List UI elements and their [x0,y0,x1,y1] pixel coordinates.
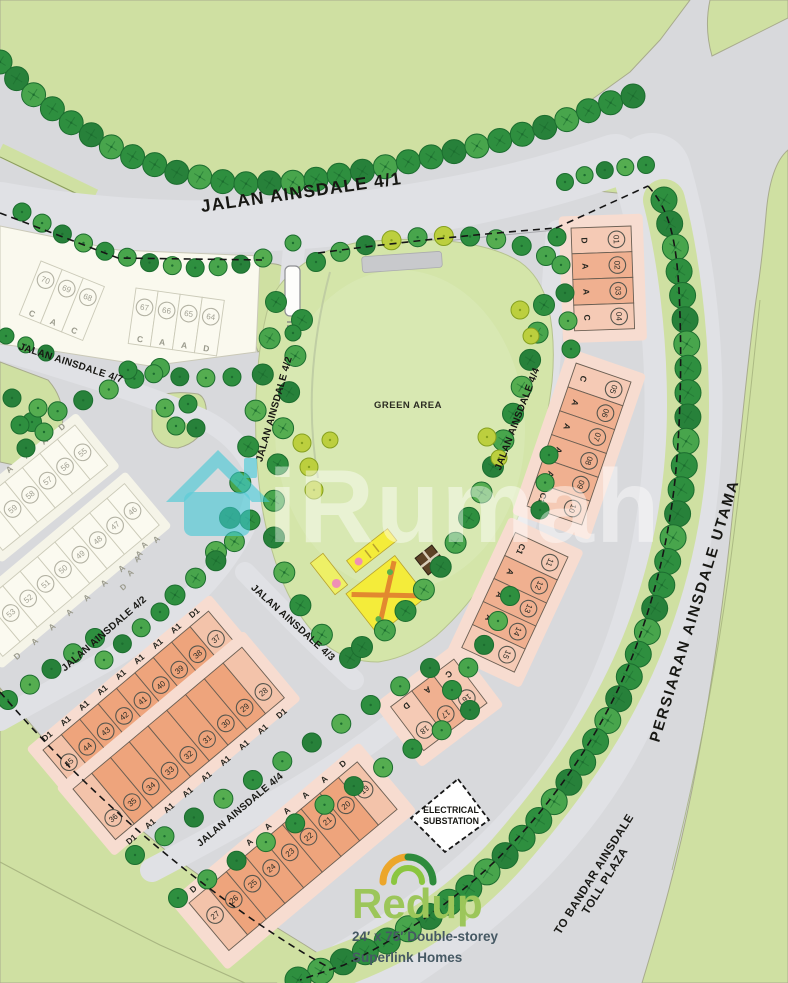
tree-icon [331,242,350,261]
tree-icon [96,242,114,260]
tree-icon [266,292,287,313]
site-plan-map: 45D144A143A142A141A140A139A138A137D136D1… [0,0,788,983]
tree-icon [186,568,206,588]
tree-icon [512,236,531,255]
tree-icon [17,439,35,457]
tree-icon [198,870,217,889]
tree-icon [151,603,169,621]
tree-icon [74,391,93,410]
tree-icon [625,641,651,667]
tree-icon [675,355,701,381]
tree-icon [419,145,443,169]
tree-icon [596,162,613,179]
tree-icon [118,248,136,266]
lot-number: 03 [613,286,622,296]
tree-icon [274,562,295,583]
tree-icon [165,585,185,605]
tree-icon [48,402,67,421]
tree-icon [232,255,250,273]
tree-icon [113,635,131,653]
lot-number: 04 [614,312,623,322]
tree-icon [197,369,215,387]
tree-icon [534,295,555,316]
tree-icon [3,389,21,407]
tree-icon [668,477,694,503]
tree-icon [121,145,145,169]
tree-icon [442,140,466,164]
tree-icon [245,400,266,421]
watermark-brand-text: iRumah [268,449,661,565]
tree-icon [285,235,301,251]
redup-name: Redup [352,880,483,927]
tree-icon [11,416,29,434]
tree-icon [674,331,700,357]
substation-label: SUBSTATION [423,816,479,826]
tree-icon [211,170,235,194]
green-area-label: GREEN AREA [374,400,442,411]
tree-icon [665,501,691,527]
tree-icon [617,159,634,176]
tree-icon [35,423,53,441]
tree-icon [562,340,580,358]
tree-icon [156,399,174,417]
entrance-guard-house [285,266,300,316]
lot-type-letter: A [580,263,590,269]
lot-number: 64 [206,312,217,322]
tree-icon [391,677,410,696]
lot-row-block-64-67: 67C66A65A64D [128,288,224,356]
tree-icon [638,157,655,174]
tree-icon [413,579,434,600]
tree-icon [302,733,321,752]
tree-icon [344,777,363,796]
tree-icon [670,283,696,309]
tree-icon [95,651,113,669]
tree-icon [206,551,226,571]
tree-icon [432,721,451,740]
tree-icon [75,234,93,252]
tree-icon [214,789,233,808]
tree-icon [42,659,61,678]
tree-icon [673,428,699,454]
tree-icon [671,453,697,479]
tree-icon [254,249,272,267]
tree-icon [421,659,440,678]
tree-icon [475,635,494,654]
tree-icon [256,833,275,852]
tree-icon [186,259,204,277]
tree-icon [533,115,557,139]
tree-icon [315,795,334,814]
tree-icon [634,619,660,645]
tree-icon [672,307,698,333]
tree-icon [33,214,51,232]
tree-icon [209,258,227,276]
tree-icon [559,312,577,330]
tree-icon [552,256,570,274]
tree-icon [555,108,579,132]
tree-icon [395,601,416,622]
tree-icon [171,368,189,386]
lot-type-letter: C [582,314,592,320]
tree-icon [143,153,167,177]
tree-icon [675,380,701,406]
tree-icon [642,595,668,621]
masterplan-svg: 45D144A143A142A141A140A139A138A137D136D1… [0,0,788,983]
tree-icon [501,587,520,606]
tree-icon [252,364,273,385]
tree-icon [488,129,512,153]
tree-icon [167,417,185,435]
tree-icon [187,419,205,437]
tree-icon [459,658,478,677]
tree-icon [621,84,645,108]
tree-icon [0,691,18,710]
tree-icon [660,525,686,551]
lot-type-letter: D [579,237,589,243]
tree-icon [511,301,529,319]
tree-icon [577,99,601,123]
tree-icon [520,349,541,370]
substation-label: ELECTRICAL [423,805,479,815]
tree-icon [273,752,292,771]
tree-icon [332,714,351,733]
tree-icon [374,620,395,641]
tree-icon [126,846,145,865]
redup-tagline: Superlink Homes [352,950,462,965]
tree-icon [352,637,373,658]
tree-icon [599,91,623,115]
tree-icon [259,328,280,349]
tree-icon [461,701,480,720]
tree-icon [29,399,47,417]
lot-type-letter: A [581,289,591,295]
tree-icon [20,675,39,694]
tree-icon [489,612,508,631]
tree-icon [556,284,574,302]
tree-icon [510,122,534,146]
tree-icon [286,814,305,833]
tree-icon [307,253,326,272]
tree-icon [434,227,453,246]
lot-number: 01 [612,235,621,245]
tree-icon [179,395,197,413]
redup-tagline: 24′ x 75′ Double-storey [352,929,499,944]
tree-icon [132,619,150,637]
tree-icon [145,365,163,383]
tree-icon [165,160,189,184]
tree-icon [478,428,496,446]
tree-icon [184,808,203,827]
tree-icon [465,134,489,158]
tree-icon [523,328,539,344]
tree-icon [99,135,123,159]
tree-icon [188,165,212,189]
tree-icon [223,368,241,386]
tree-icon [285,325,301,341]
tree-icon [155,827,174,846]
tree-icon [403,739,422,758]
tree-icon [649,572,675,598]
tree-icon [322,432,338,448]
tree-icon [53,225,71,243]
tree-icon [374,758,393,777]
lot-number: 67 [139,303,150,313]
tree-icon [169,889,188,908]
tree-icon [361,696,380,715]
tree-icon [356,236,375,255]
tree-icon [657,211,683,237]
tree-icon [576,167,593,184]
lot-number: 66 [162,306,173,316]
tree-icon [548,228,566,246]
tree-icon [557,174,574,191]
tree-icon [290,595,311,616]
tree-icon [408,228,427,247]
tree-icon [227,851,246,870]
tree-icon [382,231,401,250]
lot-number: 65 [184,309,195,319]
tree-icon [443,681,462,700]
tree-icon [0,328,14,344]
tree-icon [141,254,159,272]
lot-number: 02 [612,260,621,270]
